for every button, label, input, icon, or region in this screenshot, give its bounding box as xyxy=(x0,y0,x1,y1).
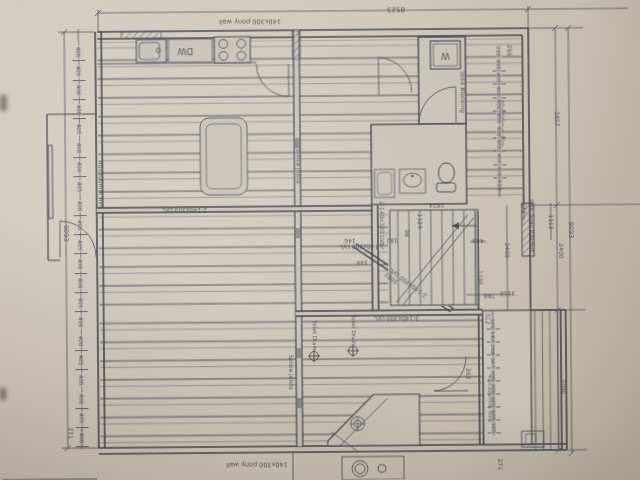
dim-98: 98 xyxy=(404,229,410,237)
dim-448: 448 xyxy=(472,238,484,244)
sheet-edge-mark xyxy=(0,95,7,111)
dim-overall-left: 9093 xyxy=(63,225,70,242)
plan-sheet: 8523 140x300 pony wall 140x300 pony wall… xyxy=(0,0,640,480)
chain-dimension: 142 xyxy=(487,329,500,342)
chain-dimension: 406 xyxy=(72,42,85,61)
chain-dimension: 305 xyxy=(487,368,500,381)
chain-dimension: 406 xyxy=(73,100,86,119)
chain-dimension: 406 xyxy=(493,125,506,139)
lvl-vertical-label: 2-140x300 LVL xyxy=(379,201,385,246)
dim-519: 519 xyxy=(496,180,502,192)
floor-plan-photo: 8523 140x300 pony wall 140x300 pony wall… xyxy=(0,0,640,480)
chain-dimension: 406 xyxy=(493,85,506,99)
chain-dimension: 405 xyxy=(75,409,88,428)
left-dimension-chain: 4064054064064054064064054064064054064064… xyxy=(72,42,89,447)
chain-dimension: 305 xyxy=(487,407,500,420)
dishwasher-label: DW xyxy=(177,46,193,55)
dim-788: 788 xyxy=(484,292,496,298)
chain-dimension: 406 xyxy=(74,274,87,293)
dim-1112: 1112 xyxy=(548,214,554,229)
chain-dimension: 406 xyxy=(75,389,88,408)
chain-dimension: 405 xyxy=(72,61,85,80)
plan-annotations: 8523 140x300 pony wall 140x300 pony wall… xyxy=(0,0,640,480)
chain-dimension: 406 xyxy=(493,138,506,152)
dim-overall-top: 8523 xyxy=(387,6,405,13)
toilet-drain-label-left: Toilet Drain xyxy=(311,320,317,351)
dim-overall-right: 9093 xyxy=(568,222,575,239)
chain-dimension: 406 xyxy=(493,111,506,125)
lvl-triple-label: 3-140x300 LVL xyxy=(374,315,419,321)
chain-dimension: 406 xyxy=(74,216,87,235)
chain-dimension: 305 xyxy=(488,420,501,433)
chain-dimension: 301 xyxy=(487,316,500,329)
pony-wall-label-top: 140x300 pony wall xyxy=(219,18,281,25)
dim-271-deck: 271 xyxy=(497,459,503,471)
dim-right-mid-inner: 2400 xyxy=(504,243,510,258)
chain-dimension: 296 xyxy=(492,44,505,58)
chain-dimension: 305 xyxy=(487,394,500,407)
chain-dimension: 406 xyxy=(75,370,88,389)
chain-dimension: 405 xyxy=(74,235,87,254)
dim-262: 262 xyxy=(465,368,471,380)
solid-blocking-label: Solid Blocking xyxy=(460,71,466,113)
chain-dimension: 406 xyxy=(73,139,86,158)
lvl-mid-label: 2-140x300 LVL xyxy=(162,207,207,213)
chain-dimension: 406 xyxy=(73,158,86,177)
dim-right-lower: 2096 xyxy=(560,379,566,394)
dim-right-upper: 3857 xyxy=(554,111,560,126)
toilet-drain-label-right: Toilet Drain xyxy=(350,314,356,345)
dim-1118: 1118 xyxy=(500,290,515,296)
chain-dimension: 305 xyxy=(487,381,500,394)
chain-dimension: 406 xyxy=(493,165,506,179)
chain-dimension: 406 xyxy=(493,98,506,112)
dim-1196: 1196 xyxy=(477,270,483,285)
splice-joists-label-upper: Splice joists xyxy=(295,148,301,184)
chain-dimension: 406 xyxy=(75,331,88,350)
chain-dimension: 268 xyxy=(487,342,500,355)
chain-dimension: 405 xyxy=(73,177,86,196)
chain-dimension: 406 xyxy=(75,312,88,331)
dim-296: 296 xyxy=(506,45,512,57)
dim-stair-width: 2874 xyxy=(429,202,444,208)
chain-dimension: 406 xyxy=(73,81,86,100)
sheet-edge-mark xyxy=(0,388,6,400)
dim-right-mid-outer: 2400 xyxy=(558,243,564,258)
chain-dimension: 406 xyxy=(493,151,506,165)
pony-wall-label-bottom: 140x300 pony wall xyxy=(226,461,288,468)
chain-dimension: 406 xyxy=(74,254,87,273)
dim-182: 182 xyxy=(386,237,398,243)
chain-dimension: 406 xyxy=(493,71,506,85)
rim-label-left: 40x300mm Rim xyxy=(97,161,103,209)
chain-dimension: 406 xyxy=(76,428,89,447)
right-dimension-chain: 296406406406406406406406406406 xyxy=(492,44,506,178)
deck-dimension-chain: 301142268307305305305305305 xyxy=(487,316,501,433)
chain-dimension: 405 xyxy=(75,351,88,370)
chain-dimension: 406 xyxy=(74,196,87,215)
dim-1124: 1124 xyxy=(417,213,423,228)
dim-146: 146 xyxy=(344,238,356,244)
chain-dimension: 405 xyxy=(73,119,86,138)
washer-label: W xyxy=(441,51,450,60)
dim-672: 672 xyxy=(521,202,527,214)
chain-dimension: 405 xyxy=(74,293,87,312)
step-down-label: Step down 890mm xyxy=(528,199,534,251)
chain-dimension: 307 xyxy=(487,355,500,368)
splice-joists-label-lower: Splice joists xyxy=(288,354,294,390)
dim-271-left: 271 xyxy=(68,427,74,439)
chain-dimension: 406 xyxy=(492,58,505,72)
dim-148: 148 xyxy=(356,260,368,266)
